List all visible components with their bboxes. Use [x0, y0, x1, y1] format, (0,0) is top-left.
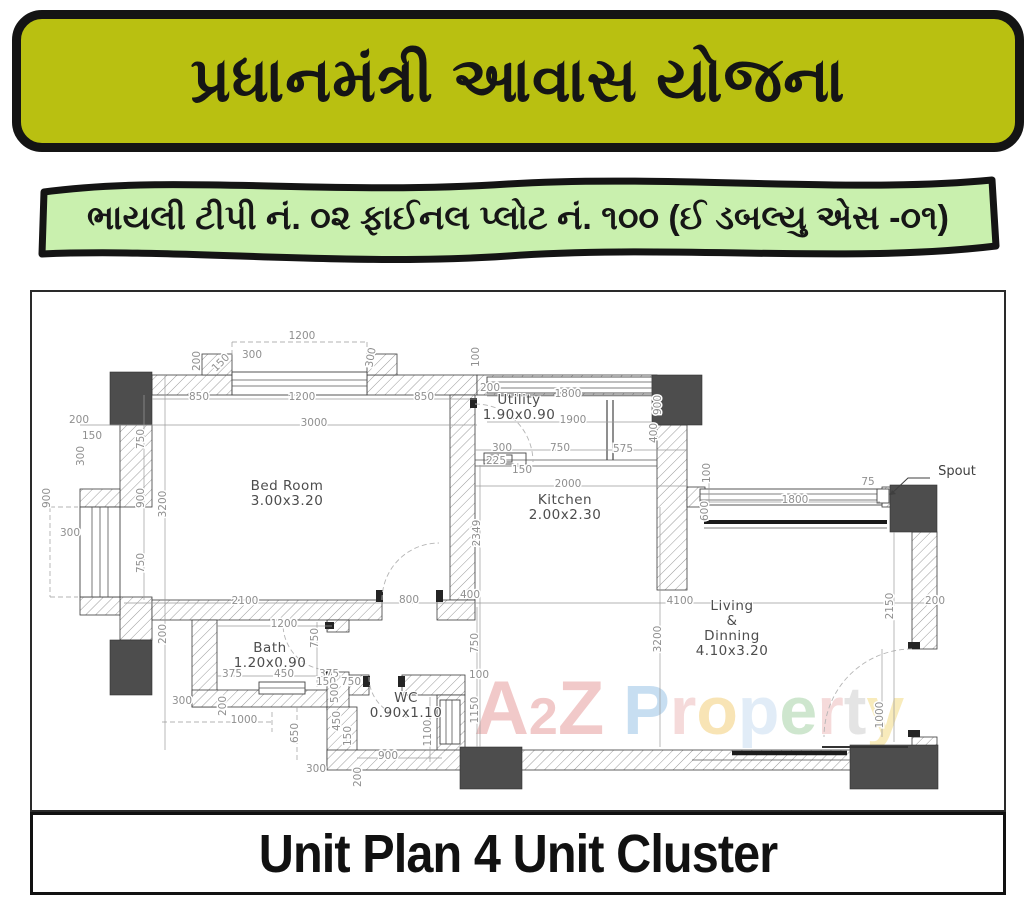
dimension-label: 750	[135, 429, 147, 449]
footer-banner: Unit Plan 4 Unit Cluster	[30, 812, 1006, 895]
dimension-label: 750	[550, 442, 570, 454]
dimension-label: 2349	[471, 520, 483, 547]
room-label: Bed Room3.00x3.20	[251, 478, 324, 509]
dimension-label: 650	[289, 723, 301, 743]
dimension-label: 1800	[782, 494, 809, 506]
dimension-label: 200	[69, 414, 89, 426]
dimension-label: 450	[274, 668, 294, 680]
dimension-label: 600	[699, 501, 711, 521]
scheme-title-banner: પ્રધાનમંત્રી આવાસ યોજના	[12, 10, 1024, 152]
dimension-label: 300	[75, 446, 87, 466]
dimension-label: 225	[486, 455, 506, 467]
dimension-label: 1900	[560, 414, 587, 426]
dimension-label: 100	[701, 463, 713, 483]
plot-info-banner: ભાયલી ટીપી નં. ૦૨ ફાઈનલ પ્લોટ નં. ૧૦૦ (ઈ…	[28, 166, 1008, 272]
dimension-label: 850	[414, 391, 434, 403]
dimension-label: 375	[222, 668, 242, 680]
watermark: A2Z Property	[474, 666, 904, 751]
dimension-label: 200	[191, 351, 203, 371]
dimension-label: 1000	[874, 702, 886, 729]
dimension-label: 200	[157, 624, 169, 644]
scheme-title: પ્રધાનમંત્રી આવાસ યોજના	[190, 45, 845, 117]
wc-window	[440, 700, 460, 744]
spout-label: Spout	[938, 464, 976, 479]
floor-plan-panel: A2Z Property	[30, 290, 1006, 812]
dimension-label: 400	[460, 589, 480, 601]
dimension-label: 1200	[289, 330, 316, 342]
dimension-label: 800	[399, 594, 419, 606]
footer-title: Unit Plan 4 Unit Cluster	[259, 823, 777, 885]
dimension-label: 200	[217, 696, 229, 716]
dimension-label: 200	[352, 767, 364, 787]
dimension-label: 300	[172, 695, 192, 707]
room-label: Living&Dinning4.10x3.20	[696, 598, 769, 659]
dimension-label: 3200	[157, 491, 169, 518]
dimension-label: 2000	[555, 478, 582, 490]
dimension-label: 900	[135, 488, 147, 508]
dimension-label: 75	[861, 476, 874, 488]
dimension-label: 400	[648, 423, 660, 443]
dimension-label: 900	[652, 395, 664, 415]
bedroom-door-arc	[382, 543, 439, 600]
dimension-label: 300	[306, 763, 326, 775]
dimension-label: 1150	[469, 697, 481, 724]
dimension-label: 1000	[231, 714, 258, 726]
dimension-label: 900	[41, 488, 53, 508]
dimension-label: 200	[925, 595, 945, 607]
dimension-label: 2150	[884, 593, 896, 620]
dimension-label: 750	[469, 633, 481, 653]
dimension-label: 750	[309, 628, 321, 648]
dimension-label: 1800	[555, 388, 582, 400]
plot-info-text: ભાયલી ટીપી નં. ૦૨ ફાઈનલ પ્લોટ નં. ૧૦૦ (ઈ…	[87, 199, 949, 238]
dimension-label: 1200	[289, 391, 316, 403]
dimension-label: 500	[329, 683, 341, 703]
dimension-label: 4100	[667, 595, 694, 607]
room-label: Bath1.20x0.90	[234, 640, 307, 671]
dimension-label: 3000	[301, 417, 328, 429]
dimension-label: 100	[470, 347, 482, 367]
dimension-label: 150	[342, 726, 354, 746]
dimension-label: 850	[189, 391, 209, 403]
dimension-label: 100	[469, 669, 489, 681]
spout-pipe	[877, 489, 889, 503]
dimension-label: 300	[242, 349, 262, 361]
floor-plan-svg: A2Z Property	[32, 292, 1004, 810]
dimension-label: 750	[341, 676, 361, 688]
dimension-label: 2100	[232, 595, 259, 607]
room-label: Utility1.90x0.90	[483, 392, 556, 423]
dimension-label: 1200	[271, 618, 298, 630]
dimension-label: 150	[512, 464, 532, 476]
room-label: Kitchen2.00x2.30	[529, 492, 602, 523]
dimension-label: 575	[613, 443, 633, 455]
dimension-label: 150	[82, 430, 102, 442]
dimension-label: 200	[480, 382, 500, 394]
dimension-label: 3200	[652, 626, 664, 653]
dimension-label: 300	[492, 442, 512, 454]
watermark-text: A2Z Property	[474, 666, 904, 751]
dimension-label: 750	[135, 553, 147, 573]
dimension-label: 900	[378, 750, 398, 762]
dimension-label: 300	[60, 527, 80, 539]
dimension-label: 1100	[422, 720, 434, 747]
